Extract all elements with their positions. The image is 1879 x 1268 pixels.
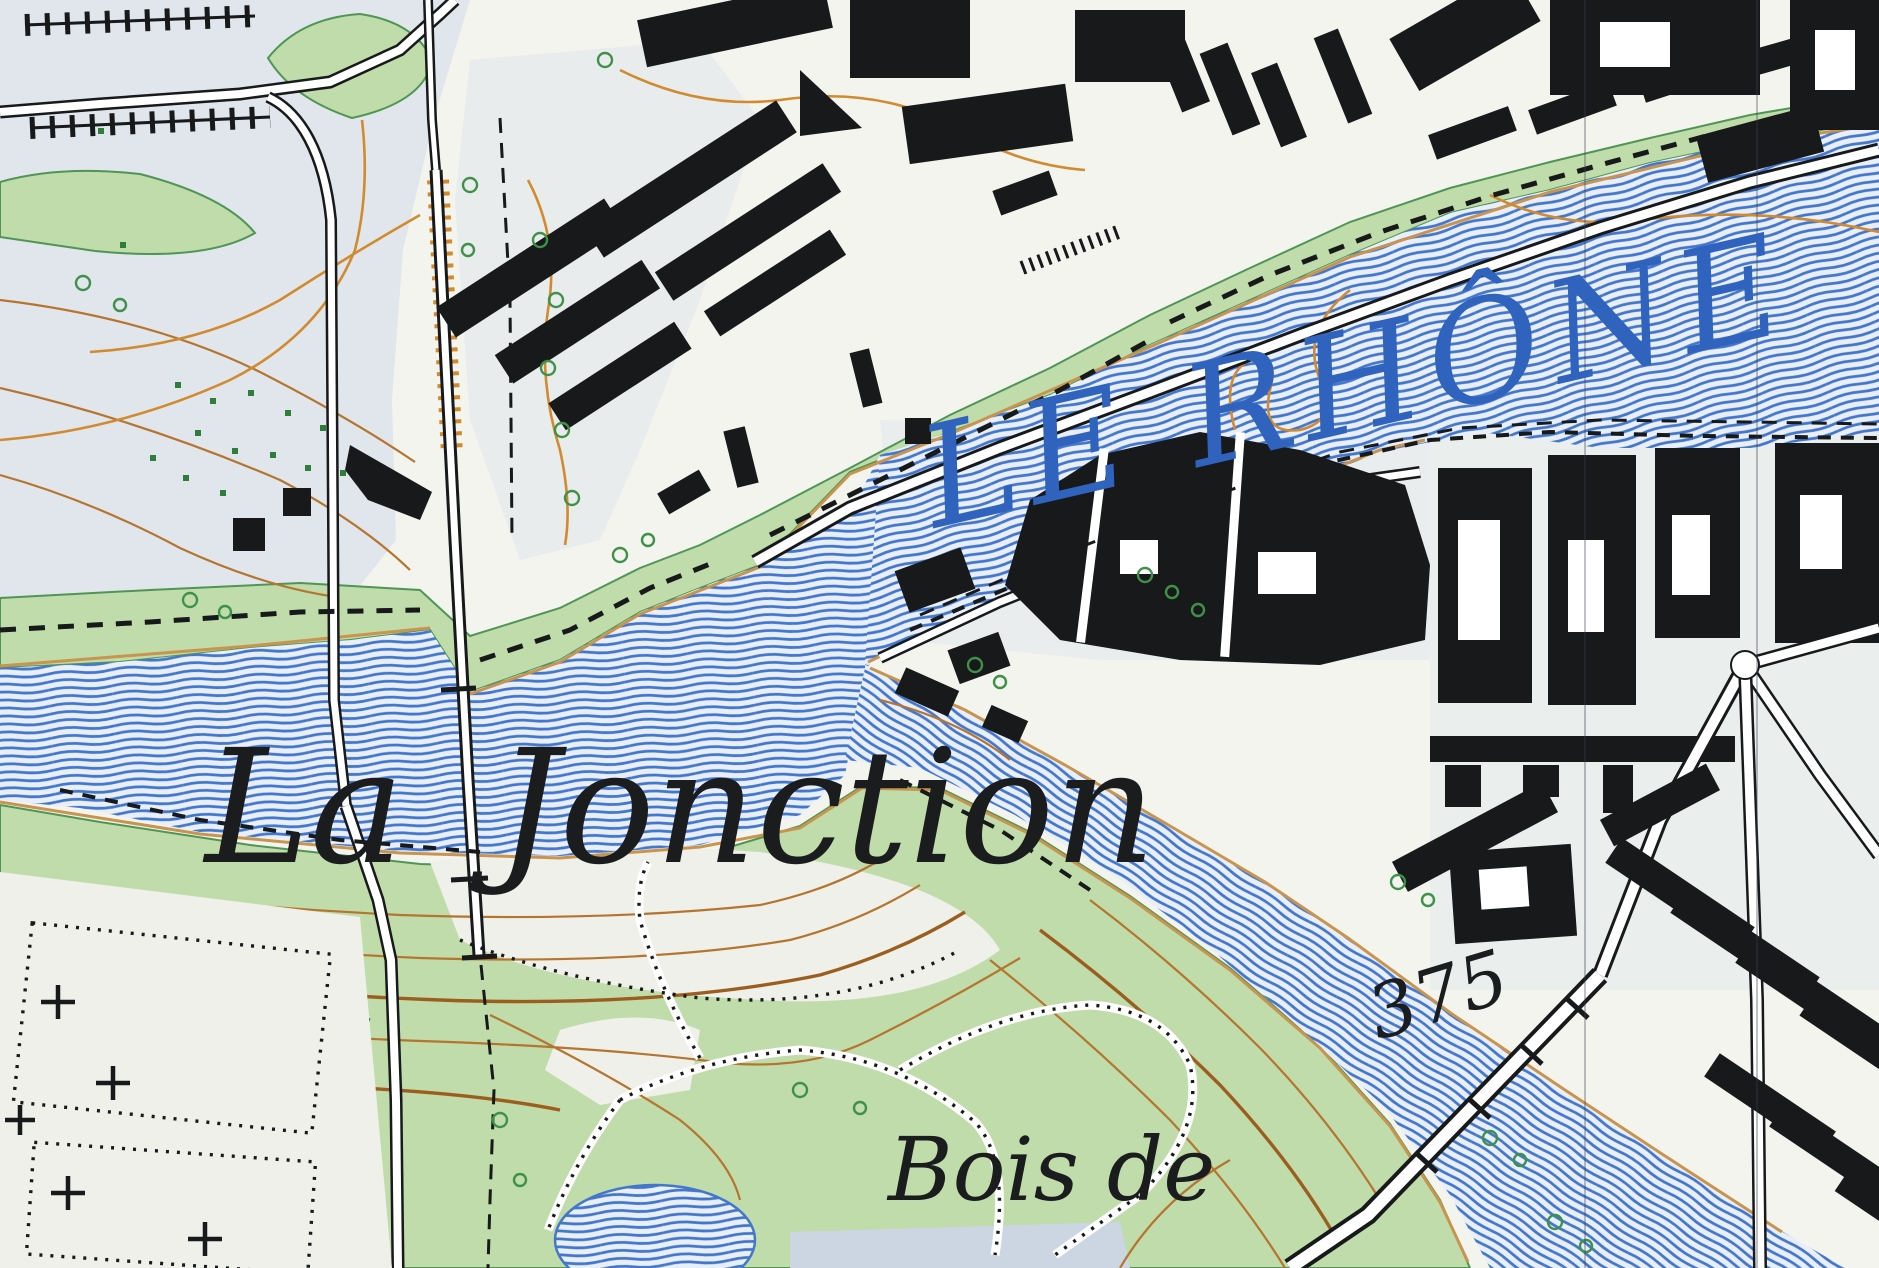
map-canvas: LE RHÔNE La Jonction Bois de 375	[0, 0, 1879, 1268]
viaduct-pier	[441, 688, 476, 690]
viaduct-abutment	[462, 956, 497, 958]
label-la-jonction: La Jonction	[202, 716, 1156, 900]
label-bois-de: Bois de	[886, 1118, 1215, 1221]
topographic-map: LE RHÔNE La Jonction Bois de 375	[0, 0, 1879, 1268]
